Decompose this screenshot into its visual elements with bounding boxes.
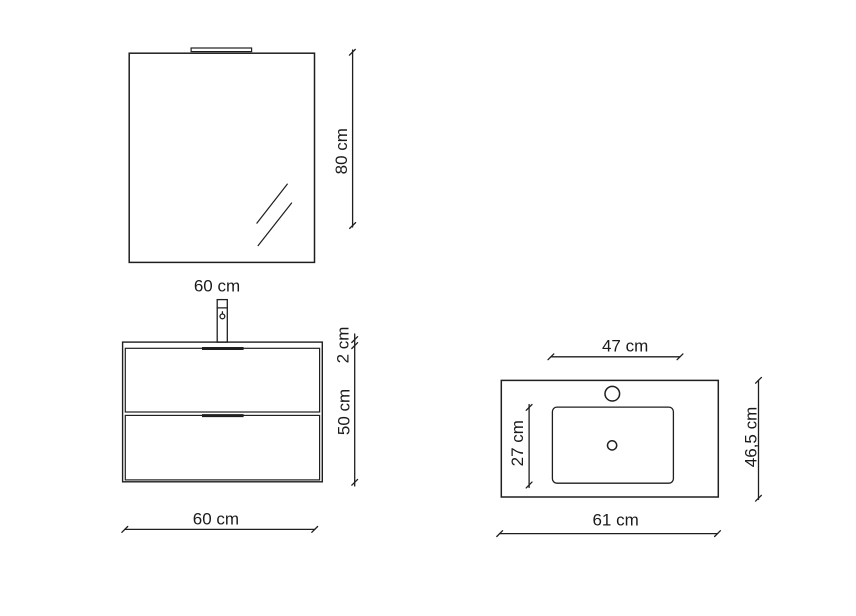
svg-text:80 cm: 80 cm [332, 128, 351, 174]
svg-text:27 cm: 27 cm [508, 420, 527, 466]
svg-text:61 cm: 61 cm [592, 510, 638, 529]
svg-text:50 cm: 50 cm [335, 389, 354, 435]
svg-text:47 cm: 47 cm [602, 337, 648, 356]
svg-text:2 cm: 2 cm [334, 327, 353, 364]
svg-text:46,5 cm: 46,5 cm [741, 407, 760, 467]
svg-text:60 cm: 60 cm [194, 277, 240, 296]
svg-text:60 cm: 60 cm [193, 510, 239, 529]
